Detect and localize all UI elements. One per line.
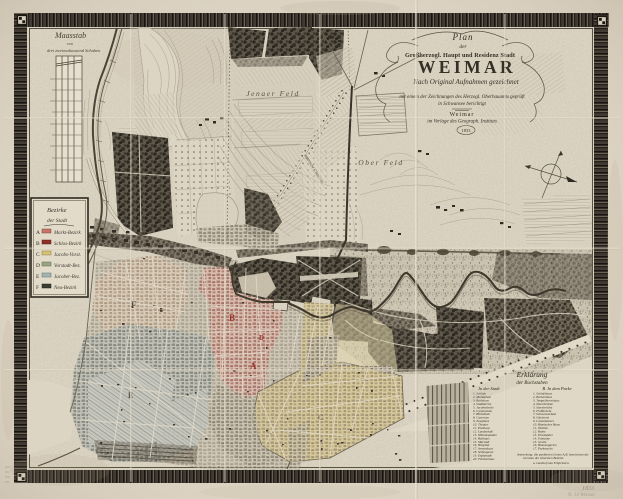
svg-text:Nach Original Aufnahmen gezeic: Nach Original Aufnahmen gezeichnet bbox=[412, 78, 519, 86]
svg-text:der: der bbox=[459, 44, 467, 50]
svg-text:von: von bbox=[67, 41, 73, 46]
svg-text:In der Stadt: In der Stadt bbox=[477, 386, 500, 391]
svg-text:1833: 1833 bbox=[462, 128, 472, 133]
svg-text:Jacobs-Vorst.: Jacobs-Vorst. bbox=[54, 253, 81, 258]
svg-text:in Schwansee berichtigt: in Schwansee berichtigt bbox=[438, 102, 486, 107]
svg-text:der Stadt: der Stadt bbox=[47, 218, 67, 224]
svg-text:B: B bbox=[36, 241, 40, 247]
svg-text:Jacober-Bez.: Jacober-Bez. bbox=[54, 275, 80, 280]
svg-text:Ober Feld: Ober Feld bbox=[358, 158, 403, 167]
svg-text:D: D bbox=[36, 263, 40, 269]
svg-text:17. Parkwache: 17. Parkwache bbox=[533, 447, 553, 451]
svg-text:D: D bbox=[259, 334, 264, 342]
svg-text:B: B bbox=[229, 313, 235, 323]
svg-text:a. Gasthof zum Erbprinzen.: a. Gasthof zum Erbprinzen. bbox=[533, 461, 570, 465]
svg-text:F: F bbox=[36, 285, 39, 291]
svg-text:N. 14 Weimar: N. 14 Weimar bbox=[567, 493, 596, 498]
svg-text:Bezirke: Bezirke bbox=[47, 207, 67, 214]
svg-text:A: A bbox=[36, 230, 40, 236]
svg-text:Erklärung: Erklärung bbox=[516, 370, 548, 379]
svg-text:Neu-Bezirk: Neu-Bezirk bbox=[53, 286, 77, 291]
svg-text:B. In dem Parke: B. In dem Parke bbox=[542, 386, 571, 391]
svg-text:Grenzen der einzelnen Bezirke.: Grenzen der einzelnen Bezirke. bbox=[523, 456, 564, 460]
svg-text:Markt-Bezirk: Markt-Bezirk bbox=[53, 231, 81, 236]
svg-text:im Verlage des Geograph. Insti: im Verlage des Geograph. Instituts bbox=[427, 120, 497, 125]
svg-text:C: C bbox=[36, 252, 40, 258]
svg-text:Jenaer Feld: Jenaer Feld bbox=[246, 89, 300, 98]
svg-text:Vorstadt-Bez.: Vorstadt-Bez. bbox=[54, 264, 81, 269]
svg-text:Maasstab: Maasstab bbox=[54, 31, 86, 40]
svg-text:mit einem der Zeichnungen des: mit einem der Zeichnungen des Herzogl. O… bbox=[399, 95, 525, 100]
svg-text:Schlos-Bezirk: Schlos-Bezirk bbox=[54, 242, 82, 247]
svg-text:1833: 1833 bbox=[582, 486, 594, 492]
svg-text:WEIMAR: WEIMAR bbox=[418, 57, 516, 77]
svg-text:Plan: Plan bbox=[452, 32, 474, 42]
svg-text:drei zweimaltausend Schuhen: drei zweimaltausend Schuhen bbox=[47, 48, 101, 53]
svg-text:20. Fürstenhaus: 20. Fürstenhaus bbox=[473, 457, 495, 461]
